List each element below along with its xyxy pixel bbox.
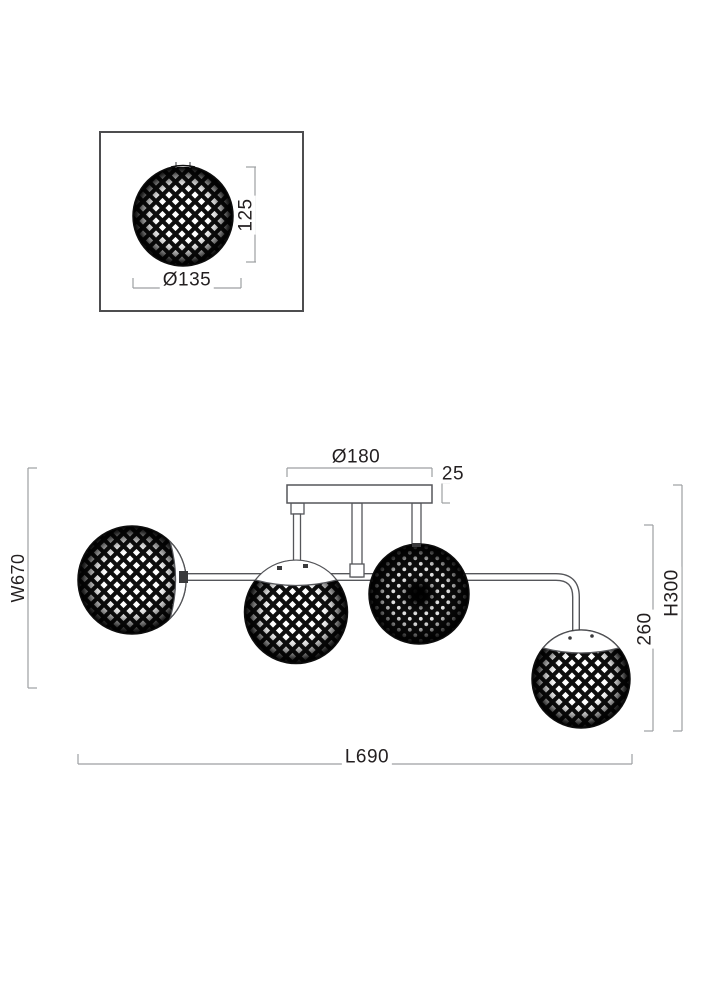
- shade1-arm-joint: [179, 571, 188, 583]
- ceiling-canopy: [287, 485, 432, 503]
- height-label: H300: [663, 566, 682, 619]
- shade3-rod-joint: [412, 543, 421, 547]
- canopy-thickness-label: 25: [439, 465, 467, 484]
- detail-diameter-label: Ø135: [160, 271, 214, 290]
- shade2-cap: [255, 560, 336, 585]
- main-view: [28, 468, 682, 764]
- detail-height-label: 125: [237, 195, 256, 234]
- length-label: L690: [342, 748, 392, 767]
- shade2-rod-connector: [291, 503, 304, 514]
- width-label: W670: [9, 550, 27, 605]
- canopy-diameter-label: Ø180: [329, 448, 383, 467]
- canopy-stem-collar: [350, 564, 364, 577]
- shade4-cap: [543, 630, 619, 653]
- shade-drop-label: 260: [636, 609, 655, 648]
- lamp-dimension-drawing: [0, 0, 706, 1000]
- canopy-diameter-dim-line: [287, 468, 432, 477]
- canopy-thickness-dim-line: [442, 483, 450, 503]
- lamp-shade-3: [369, 543, 469, 644]
- technical-drawing-page: 125 Ø135 Ø180 25 W670 260 H300 L690: [0, 0, 706, 1000]
- lamp-shade-4: [532, 630, 630, 728]
- lamp-shade-2: [245, 560, 348, 663]
- width-dim-line: [28, 468, 37, 688]
- shade2-rod: [294, 514, 301, 562]
- shade3-rod: [412, 503, 421, 546]
- lamp-shade-1: [78, 526, 188, 634]
